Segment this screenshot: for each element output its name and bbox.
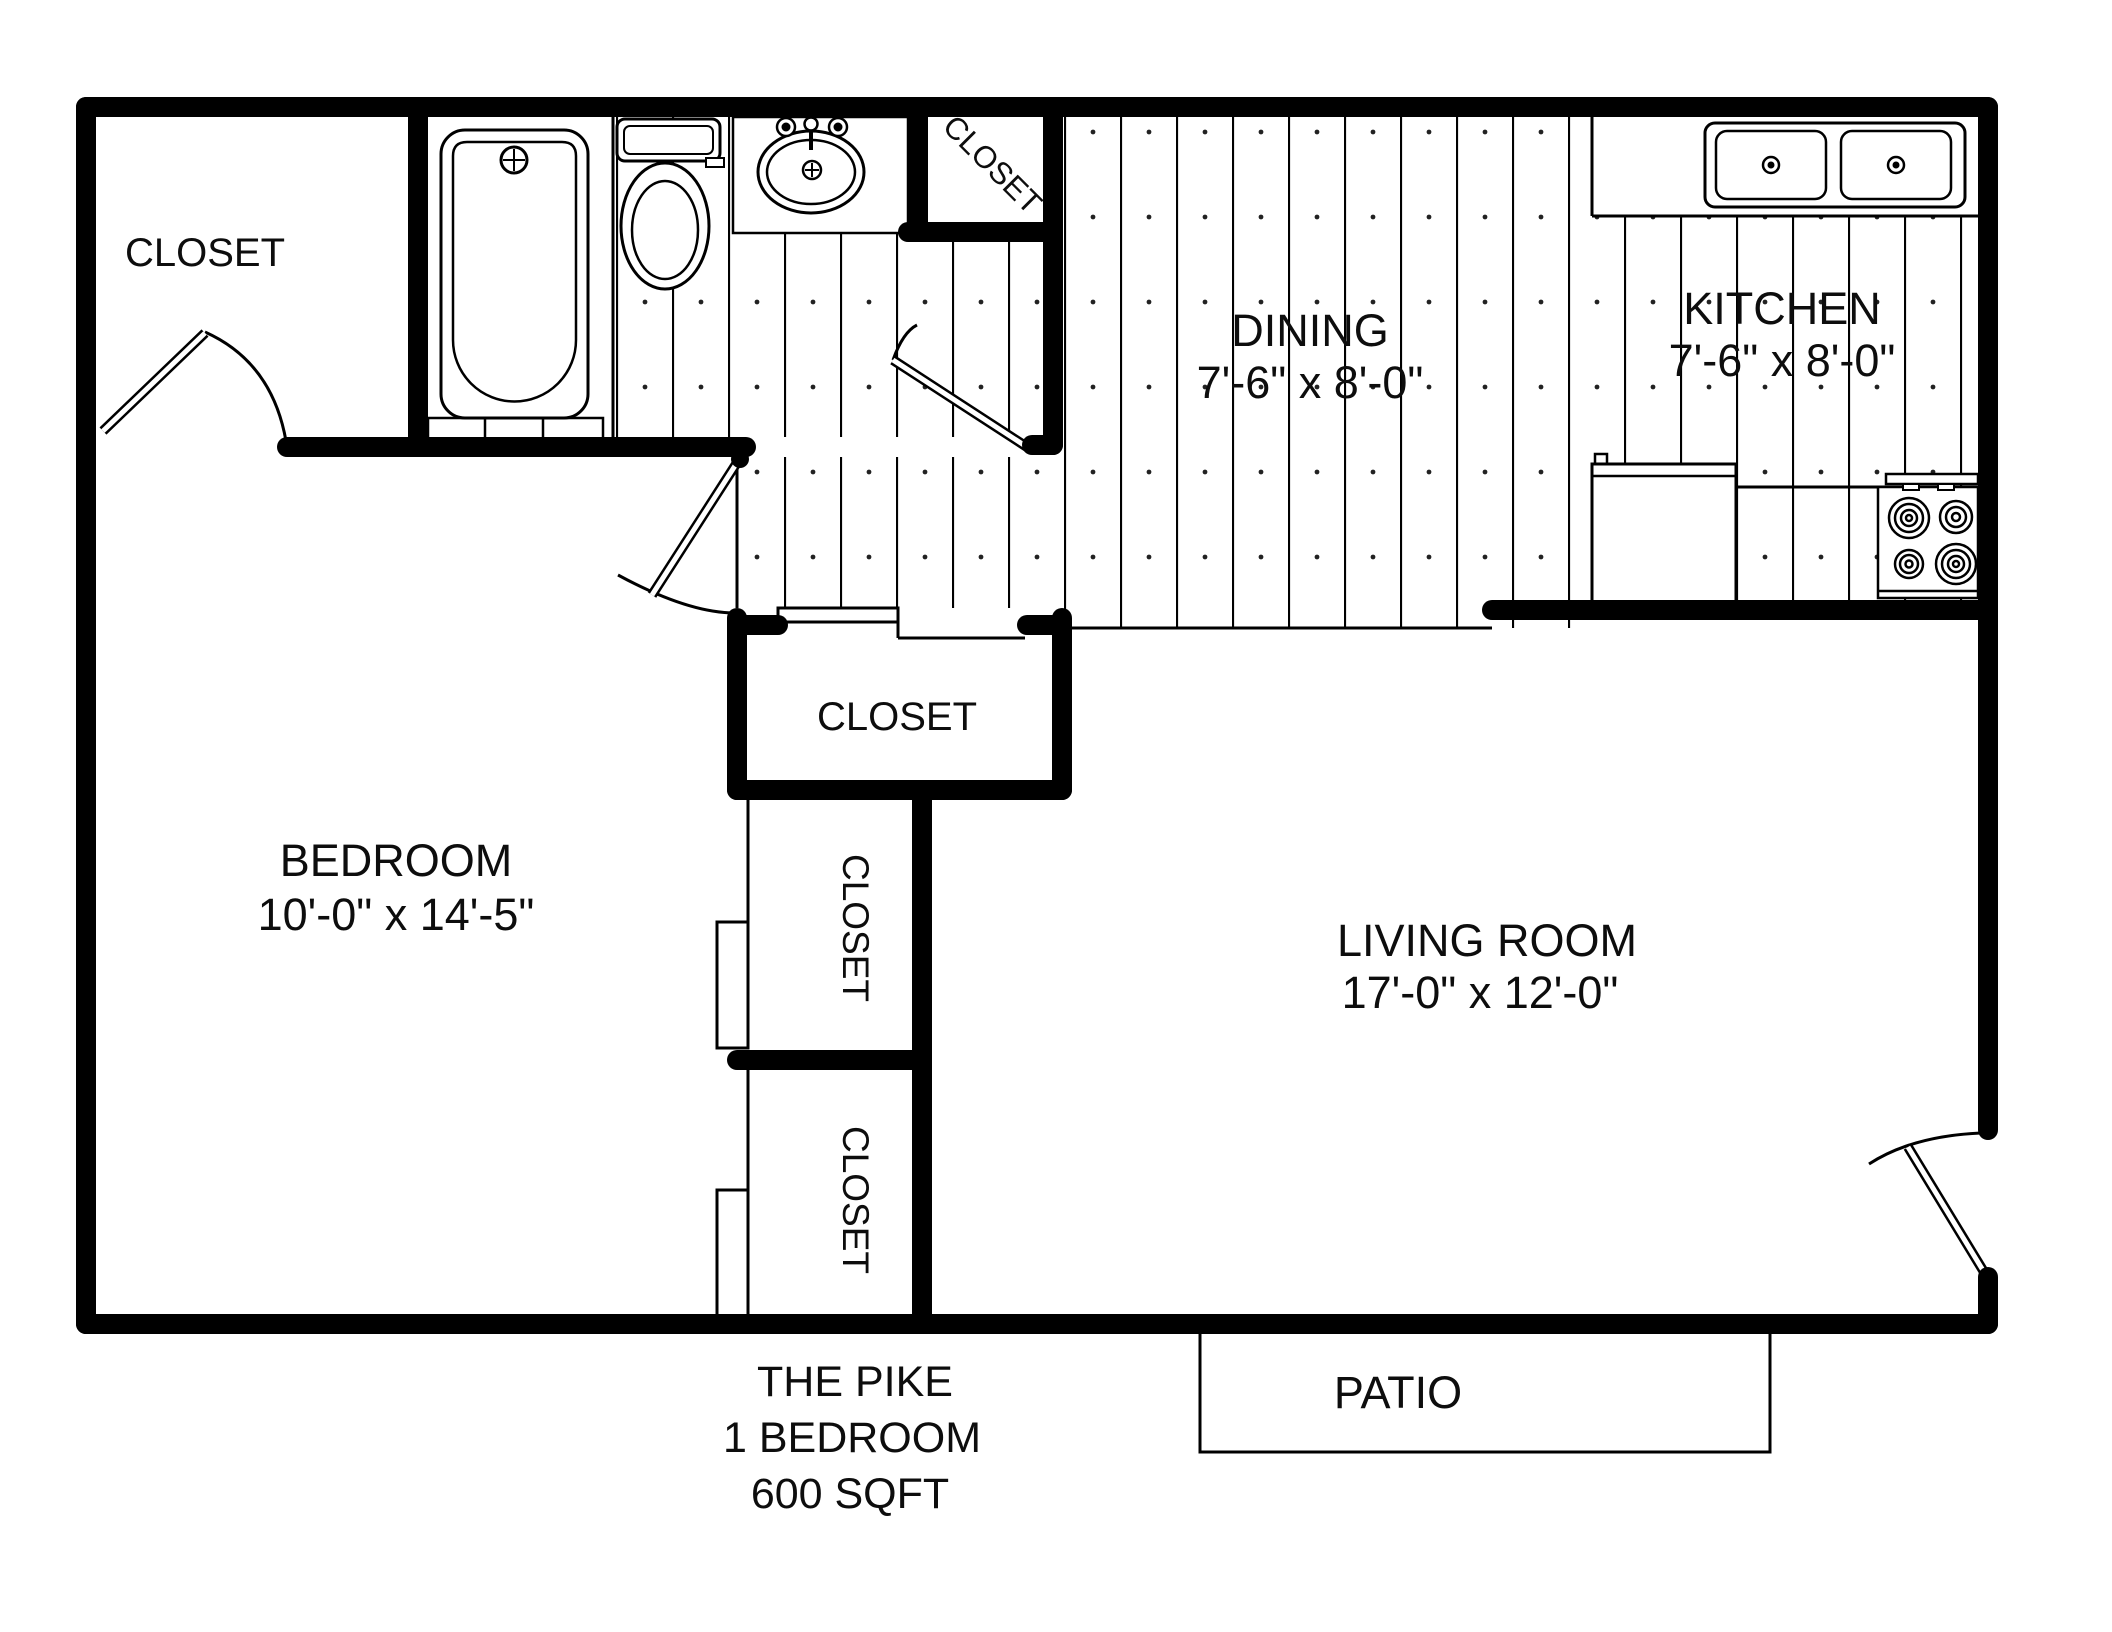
kitchen-label: KITCHEN: [1683, 283, 1881, 334]
dining-dims: 7'-6" x 8'-0": [1197, 357, 1424, 408]
bedroom-closet-lower-label: CLOSET: [835, 1126, 876, 1274]
bathtub-icon: [441, 130, 588, 418]
door-leaf-inner: [1908, 1147, 1984, 1272]
closet-lower-door-panel: [717, 1190, 748, 1316]
entry-closet-label: CLOSET: [125, 231, 285, 275]
stove-icon: [1878, 474, 1978, 598]
floorplan-page: CLOSET CLOSET DINING 7'-6" x 8'-0" KITCH…: [0, 0, 2112, 1632]
living-room-label: LIVING ROOM: [1337, 915, 1637, 966]
plan-type: 1 BEDROOM: [723, 1414, 981, 1462]
closet-upper-door-panel: [717, 922, 748, 1048]
kitchen-dims: 7'-6" x 8'-0": [1669, 335, 1896, 386]
bedroom-label: BEDROOM: [280, 835, 513, 886]
refrigerator-icon: [1592, 454, 1736, 604]
bedroom-dims: 10'-0" x 14'-5": [258, 889, 535, 940]
bathroom-sink-icon: [733, 117, 908, 233]
living-room-dims: 17'-0" x 12'-0": [1342, 967, 1619, 1018]
bathroom-floor-right: [908, 242, 1045, 437]
door-leaf-inner: [103, 333, 205, 431]
door-leaf-inner: [652, 458, 740, 595]
bedroom-door: [618, 450, 749, 613]
entry-closet-door: [103, 332, 286, 441]
door-swing-arc: [205, 332, 286, 441]
hall-floor: [737, 457, 1045, 608]
dining-label: DINING: [1231, 305, 1389, 356]
plan-area: 600 SQFT: [751, 1470, 949, 1518]
plan-title: THE PIKE: [757, 1358, 953, 1406]
bath-closet-label: CLOSET: [936, 108, 1048, 220]
patio-door: [1869, 1133, 1984, 1272]
kitchen-sink-icon: [1705, 123, 1965, 207]
door-swing-arc: [618, 575, 735, 613]
patio-outline: [1200, 1334, 1770, 1452]
patio-label: PATIO: [1334, 1367, 1462, 1418]
bedroom-closet-upper-label: CLOSET: [835, 854, 876, 1002]
floorplan-drawing: CLOSET CLOSET DINING 7'-6" x 8'-0" KITCH…: [0, 0, 2112, 1632]
tub-deck: [428, 418, 603, 440]
door-swing-arc: [1869, 1133, 1981, 1164]
closet-opening: [778, 608, 898, 622]
hall-closet-label: CLOSET: [817, 695, 977, 739]
